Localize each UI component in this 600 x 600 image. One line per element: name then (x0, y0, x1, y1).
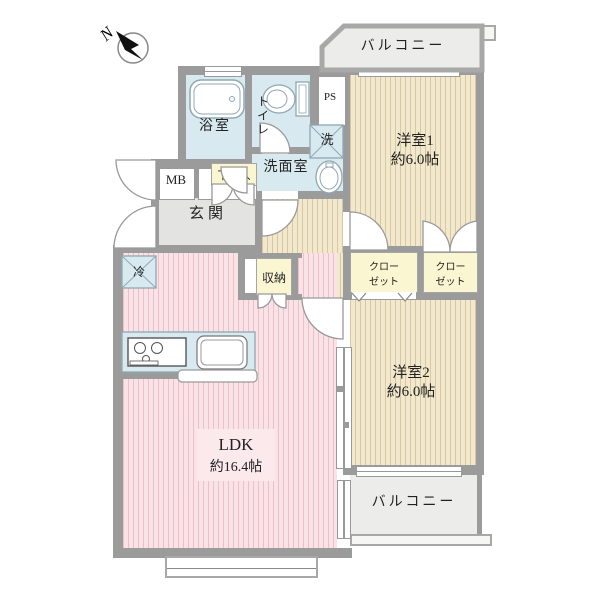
storage-door-right (272, 294, 286, 308)
closet2-door-left (423, 221, 450, 252)
pipe-space-label: PS (317, 90, 343, 106)
entrance-door-swing (114, 206, 156, 248)
washroom-label: 洗面室 (250, 159, 322, 177)
bedroom2-label: 洋室2 約6.0帖 (355, 360, 467, 406)
bathtub-icon (190, 80, 244, 118)
entrance-label: 玄関 (168, 204, 248, 224)
ldk-door-swing (302, 298, 343, 339)
north-compass: N (95, 22, 148, 63)
meter-box-label: MB (159, 171, 193, 189)
kitchen-sink-icon (197, 336, 247, 369)
north-label: N (95, 22, 118, 45)
floor-plan: 下足入 収納 クロー ゼット クロー ゼット N (0, 0, 600, 600)
kitchen-counter (122, 332, 257, 382)
balcony-bottom-label: バルコニー (358, 493, 470, 513)
counter-ledge (178, 370, 257, 382)
toilet-label: トイレ (254, 80, 270, 152)
storage-door-left (258, 294, 272, 308)
meter-box-door-swing (116, 160, 156, 200)
closet2-door-right (450, 221, 477, 252)
washroom-door-swing (262, 200, 298, 236)
bathroom-label: 浴室 (184, 117, 246, 137)
bedroom1-door-swing (350, 212, 388, 250)
closet1-folding-marks (352, 292, 416, 301)
washer-label: 洗 (316, 130, 338, 150)
balcony-top-label: バルコニー (330, 37, 476, 57)
fridge-label: 冷 (122, 260, 156, 284)
plan-decor: N (0, 0, 600, 600)
bedroom1-label: 洋室1 約6.0帖 (360, 128, 470, 174)
